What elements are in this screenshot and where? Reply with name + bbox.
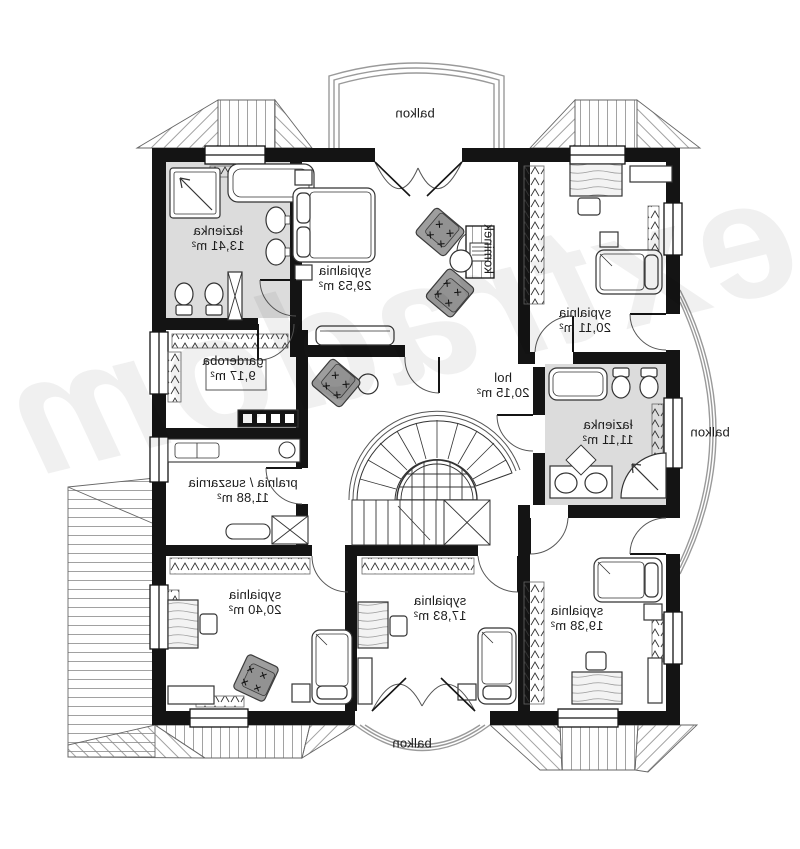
side-table bbox=[450, 250, 472, 272]
door-arc-icon bbox=[312, 556, 348, 592]
door-arc-icon bbox=[405, 357, 439, 393]
nightstand bbox=[600, 232, 618, 247]
double-bed-icon bbox=[293, 188, 375, 262]
balcony-railing-top bbox=[329, 63, 504, 148]
door-arc-icon bbox=[630, 518, 666, 554]
wardrobe-island bbox=[206, 360, 266, 390]
shelf bbox=[648, 658, 662, 703]
desk-icon bbox=[168, 600, 198, 648]
desk-icon bbox=[572, 672, 622, 704]
balcony-railing-bottom bbox=[355, 725, 490, 751]
chair-icon bbox=[390, 616, 407, 636]
window-icon bbox=[150, 332, 168, 394]
armchair-icon bbox=[415, 207, 466, 257]
bed5-furniture bbox=[572, 558, 662, 704]
chair-icon bbox=[586, 652, 606, 670]
door-arc-icon bbox=[478, 556, 518, 592]
shower-icon bbox=[170, 168, 220, 218]
shelf bbox=[630, 166, 672, 182]
single-bed-icon bbox=[312, 630, 352, 704]
window-icon bbox=[150, 437, 168, 482]
door-arc-icon bbox=[530, 518, 568, 554]
single-bed-icon bbox=[478, 628, 516, 704]
single-bed-icon bbox=[594, 558, 662, 602]
desk-icon bbox=[358, 602, 388, 648]
stairs bbox=[349, 411, 520, 545]
french-door-icon bbox=[375, 162, 462, 196]
chair-icon bbox=[578, 198, 600, 215]
desk-icon bbox=[570, 164, 622, 196]
window-icon bbox=[664, 398, 682, 468]
bathtub-icon bbox=[549, 368, 607, 400]
window-icon bbox=[570, 146, 625, 164]
washer-icon bbox=[272, 516, 308, 544]
roof-hatch-top-right bbox=[530, 100, 700, 148]
sofa-icon bbox=[316, 326, 394, 345]
armchair-icon bbox=[233, 654, 280, 703]
balcony-railing-right bbox=[680, 290, 716, 574]
door-arc-icon bbox=[535, 316, 573, 352]
folding-partition-icon bbox=[228, 272, 242, 320]
single-bed-icon bbox=[596, 250, 662, 294]
window-icon bbox=[150, 585, 168, 649]
floor-plan-graphic bbox=[0, 0, 800, 849]
door-arc-icon bbox=[497, 415, 533, 451]
door-arc-icon bbox=[630, 314, 666, 350]
ironing-board-icon bbox=[226, 524, 270, 539]
bed4-furniture bbox=[358, 602, 516, 704]
side-table bbox=[358, 374, 378, 394]
floor-plan-canvas: extradom łazienka 13,41 m² sypialnia 29,… bbox=[0, 0, 800, 849]
chair-icon bbox=[200, 614, 217, 634]
nightstand bbox=[295, 170, 312, 185]
armchair-icon bbox=[311, 358, 362, 408]
roof-hatch-top-left bbox=[137, 100, 312, 148]
shelf bbox=[358, 658, 372, 704]
window-icon bbox=[664, 203, 682, 255]
window-icon bbox=[205, 146, 265, 164]
window-icon bbox=[190, 709, 248, 727]
nightstand bbox=[295, 265, 312, 280]
nightstand bbox=[292, 684, 310, 702]
window-icon bbox=[558, 709, 618, 727]
roof-hatch-left bbox=[68, 478, 155, 757]
nightstand bbox=[644, 604, 662, 620]
door-arc-icon bbox=[266, 468, 302, 504]
window-icon bbox=[664, 612, 682, 664]
roof-hatch-bottom-right bbox=[490, 725, 697, 772]
bench bbox=[168, 686, 214, 704]
